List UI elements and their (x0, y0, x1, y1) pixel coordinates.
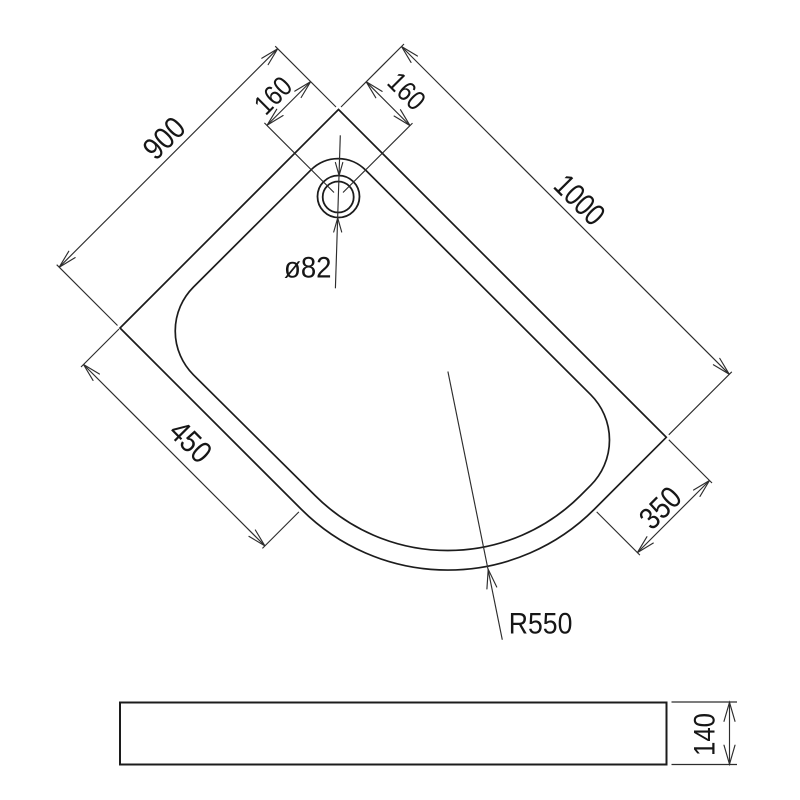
svg-text:ø82: ø82 (284, 252, 332, 285)
svg-text:140: 140 (689, 713, 722, 756)
svg-text:R550: R550 (509, 608, 573, 641)
